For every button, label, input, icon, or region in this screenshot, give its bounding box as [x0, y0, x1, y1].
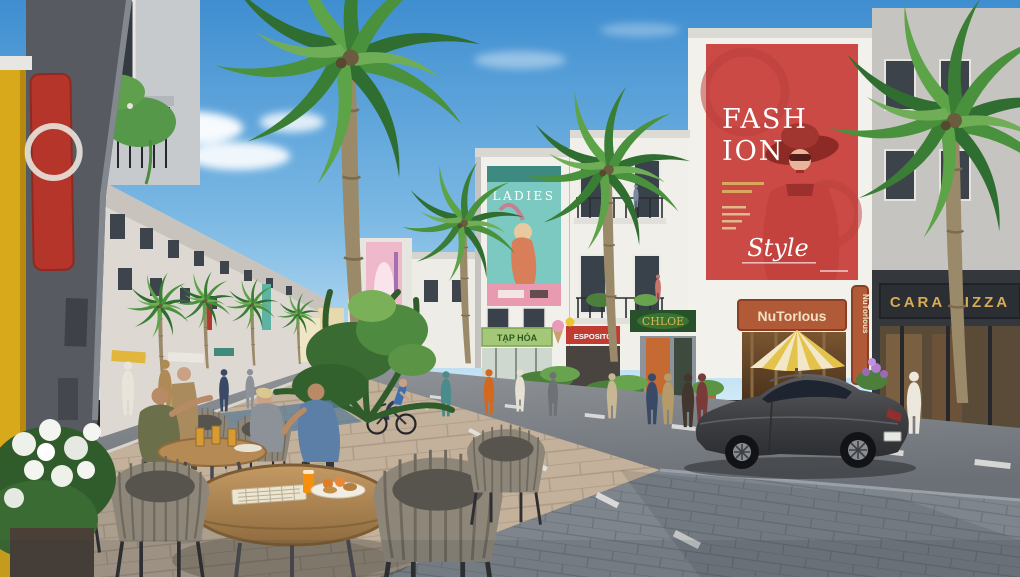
street-scene-canvas: LADIES	[0, 0, 1020, 577]
fashion-banner: FASH ION Style	[705, 44, 858, 280]
fashion-banner-line2: ION	[722, 136, 784, 167]
bottom-vignette	[0, 540, 1020, 577]
fashion-banner-line1: FASH	[722, 104, 808, 135]
nutorious-vertical-text: NuTorIous	[861, 294, 870, 334]
chloe-sign-text: CHLOE	[642, 315, 684, 328]
tap-hoa-sign-text: TẠP HÓA	[497, 332, 538, 343]
street-render: LADIES	[0, 0, 1020, 577]
license-plate	[884, 432, 901, 441]
esposito-sign-text: ESPOSITO	[574, 332, 612, 341]
fashion-banner-style-word: Style	[747, 234, 809, 262]
ladies-banner-text: LADIES	[493, 189, 556, 203]
nutorious-sign-text: NuTorIous	[758, 308, 827, 324]
